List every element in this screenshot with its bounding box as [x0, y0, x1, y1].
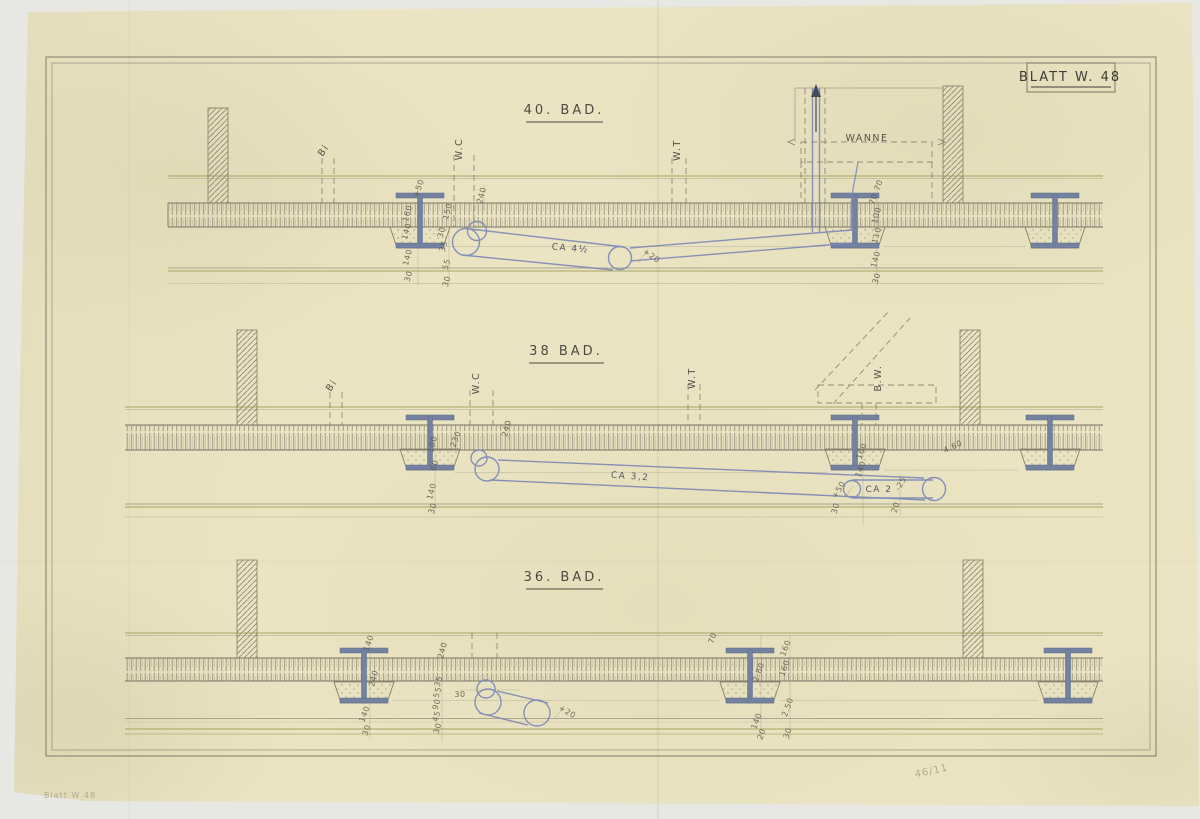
floor-slab	[168, 203, 1103, 227]
annotation-dim: +20	[557, 703, 577, 720]
annotation-faint: Blatt W 48	[44, 791, 96, 800]
plumbing-section-drawing: BLATT W. 48 40. BAD.	[0, 0, 1200, 819]
annotation-lbl: W.C	[454, 138, 465, 160]
annotation-lbl: WANNE	[845, 133, 888, 144]
annotation-dim: 2.50	[780, 696, 795, 718]
annotation-dim: 30	[432, 722, 444, 735]
section-title-38: 38 BAD.	[529, 344, 603, 359]
annotation-lbl: W.T	[687, 367, 698, 389]
column	[237, 330, 257, 425]
annotation-lbl: B.W.	[873, 365, 884, 392]
annotation-dim: 30	[361, 723, 373, 737]
annotation-pipe: CA 4½	[551, 242, 589, 255]
sheet-number-label: BLATT W. 48	[1019, 70, 1121, 85]
annotation-dim: 35	[438, 240, 450, 253]
column	[963, 560, 983, 658]
annotation-dim: 30	[830, 502, 842, 515]
annotation-dim: 45	[431, 710, 443, 723]
annotation-dim: 30	[782, 726, 794, 740]
column	[237, 560, 257, 658]
annotation-dim: 30	[454, 690, 465, 699]
section-38-bad: 38 BAD.	[125, 310, 1103, 525]
section-40-bad: 40. BAD.	[168, 84, 1103, 287]
drain-pipe-run	[453, 88, 859, 270]
fixture-reference-lines	[330, 310, 936, 425]
annotation-lbl: Bi	[316, 142, 332, 158]
annotation-dim: 240	[475, 186, 488, 205]
annotation-dim: 140	[869, 250, 882, 269]
section-36-bad: 36. BAD.	[125, 560, 1103, 742]
annotation-dim: 90	[431, 698, 443, 711]
annotation-dim: 30	[427, 502, 439, 515]
section-title-40: 40. BAD.	[524, 103, 605, 118]
annotation-dim: 140	[425, 482, 438, 501]
annotation-dim: 20	[890, 501, 902, 514]
annotation-dim: 240	[436, 641, 449, 660]
annotation-dim: 55	[441, 258, 453, 271]
fixture-reference-lines	[472, 633, 497, 658]
floor-slab	[125, 658, 1103, 681]
column	[208, 108, 228, 203]
annotation-dim: 160	[779, 639, 793, 658]
annotation-lbl: Bi	[324, 377, 340, 393]
annotation-pipe: CA 3,2	[611, 471, 650, 484]
annotation-dim: 30	[871, 272, 883, 285]
annotation-faint2: 46/11	[914, 763, 949, 781]
annotation-dim: 30	[403, 270, 415, 283]
annotation-lbl: W.C	[471, 372, 482, 394]
annotation-lbl: W.T	[672, 139, 683, 161]
annotation-dim: 140	[750, 712, 764, 731]
drain-pipe-run	[475, 680, 550, 726]
title-box: BLATT W. 48	[1019, 63, 1121, 92]
annotation-dim: 30	[441, 275, 453, 288]
column	[960, 330, 980, 425]
column	[943, 86, 963, 203]
annotation-dim: 140	[401, 248, 414, 267]
annotation-pipe: CA 2	[865, 485, 892, 495]
annotation-dim: +20	[641, 247, 661, 265]
annotation-dim: 55	[432, 686, 444, 699]
section-title-36: 36. BAD.	[524, 570, 605, 585]
annotation-dim: 140	[358, 705, 372, 724]
annotation-dim: 70	[873, 178, 885, 192]
